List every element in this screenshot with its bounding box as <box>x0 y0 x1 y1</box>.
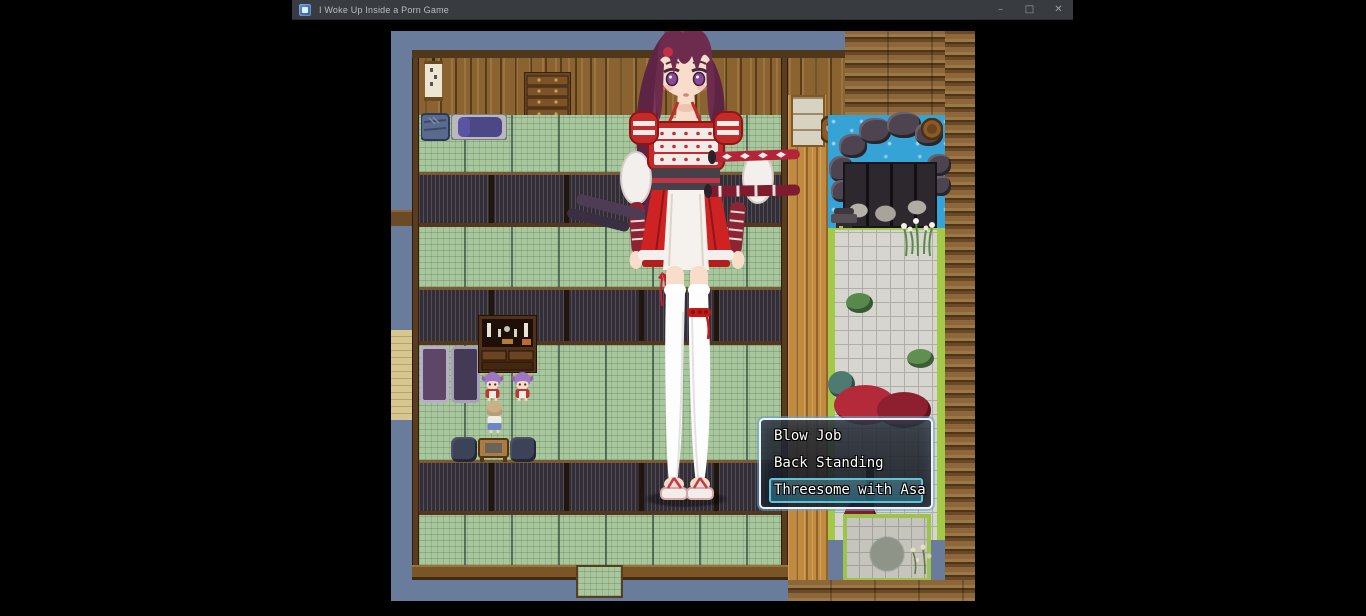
choice-menu-window: Blow Job Back Standing Threesome with As… <box>759 418 933 509</box>
app-icon-glyph <box>302 7 308 13</box>
menu-item[interactable]: Threesome with Asa <box>769 478 923 503</box>
bush <box>846 293 873 313</box>
window-title: I Woke Up Inside a Porn Game <box>319 5 449 15</box>
window-controls: – □ ✕ <box>986 0 1073 20</box>
small-flowers <box>907 542 933 578</box>
tatami-row <box>419 515 781 565</box>
bush <box>907 349 934 368</box>
letterbox-bottom <box>391 601 975 608</box>
player-sprite[interactable] <box>483 400 506 434</box>
minimize-button[interactable]: – <box>986 0 1015 20</box>
altar <box>478 315 537 373</box>
npc-twin-sprite[interactable] <box>511 371 534 404</box>
low-table <box>478 437 509 463</box>
bed-futon <box>451 114 507 140</box>
cushion <box>510 437 536 462</box>
game-window: I Woke Up Inside a Porn Game – □ ✕ <box>292 0 1073 616</box>
entry-step <box>576 565 623 598</box>
game-viewport[interactable]: Blow Job Back Standing Threesome with As… <box>391 22 975 608</box>
menu-item[interactable]: Blow Job <box>769 424 923 449</box>
purple-futon <box>451 346 480 403</box>
log-wall-right <box>945 31 975 601</box>
white-flowers <box>896 210 940 258</box>
exterior-mat <box>391 330 412 420</box>
purple-futon <box>420 346 449 403</box>
cushion <box>451 437 477 462</box>
exterior-beam <box>391 210 412 226</box>
window-titlebar[interactable]: I Woke Up Inside a Porn Game – □ ✕ <box>292 0 1073 20</box>
app-icon <box>299 4 311 16</box>
desktop-background: I Woke Up Inside a Porn Game – □ ✕ <box>0 0 1366 616</box>
maximize-button[interactable]: □ <box>1015 0 1044 20</box>
log-wall-bottom <box>788 580 975 601</box>
onsen-bucket <box>921 118 943 140</box>
room-left-frame <box>412 58 419 580</box>
letterbox-top <box>391 22 975 31</box>
hanging-scroll <box>423 58 444 102</box>
close-button[interactable]: ✕ <box>1044 0 1073 20</box>
menu-item[interactable]: Back Standing <box>769 451 923 476</box>
folded-futon <box>421 112 451 142</box>
